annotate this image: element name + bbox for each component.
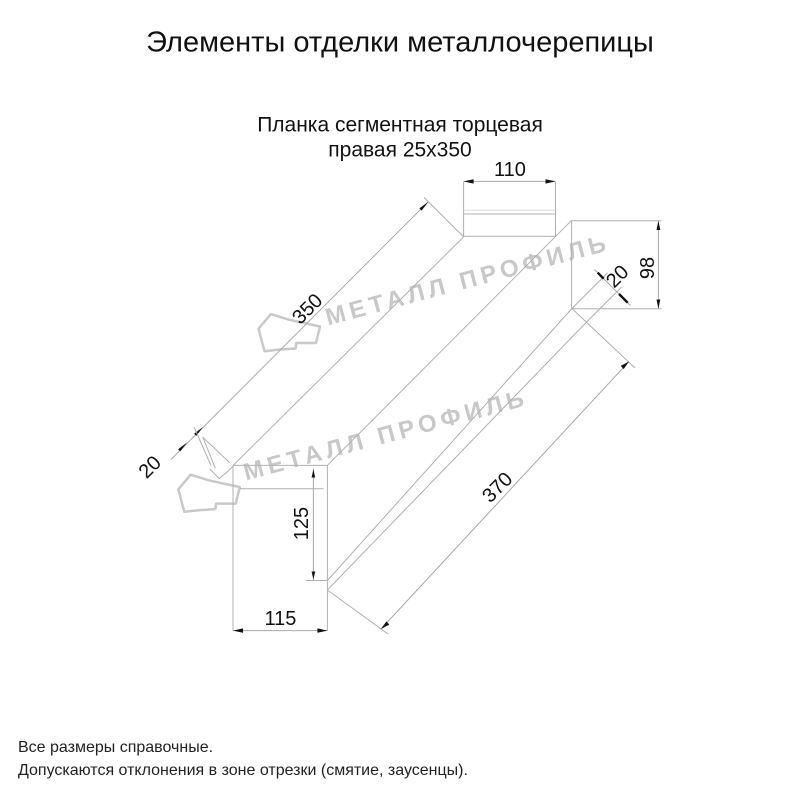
svg-text:Элементы отделки металлочерепи: Элементы отделки металлочерепицы <box>146 27 654 59</box>
svg-text:правая 25х350: правая 25х350 <box>328 139 471 162</box>
svg-text:Все размеры справочные.: Все размеры справочные. <box>18 739 213 756</box>
svg-text:110: 110 <box>494 159 526 181</box>
svg-text:115: 115 <box>265 608 297 630</box>
svg-text:Планка сегментная торцевая: Планка сегментная торцевая <box>257 114 543 137</box>
svg-text:125: 125 <box>291 507 313 540</box>
svg-text:Допускаются отклонения в зоне: Допускаются отклонения в зоне отрезки (с… <box>18 762 468 779</box>
svg-text:98: 98 <box>637 257 659 279</box>
